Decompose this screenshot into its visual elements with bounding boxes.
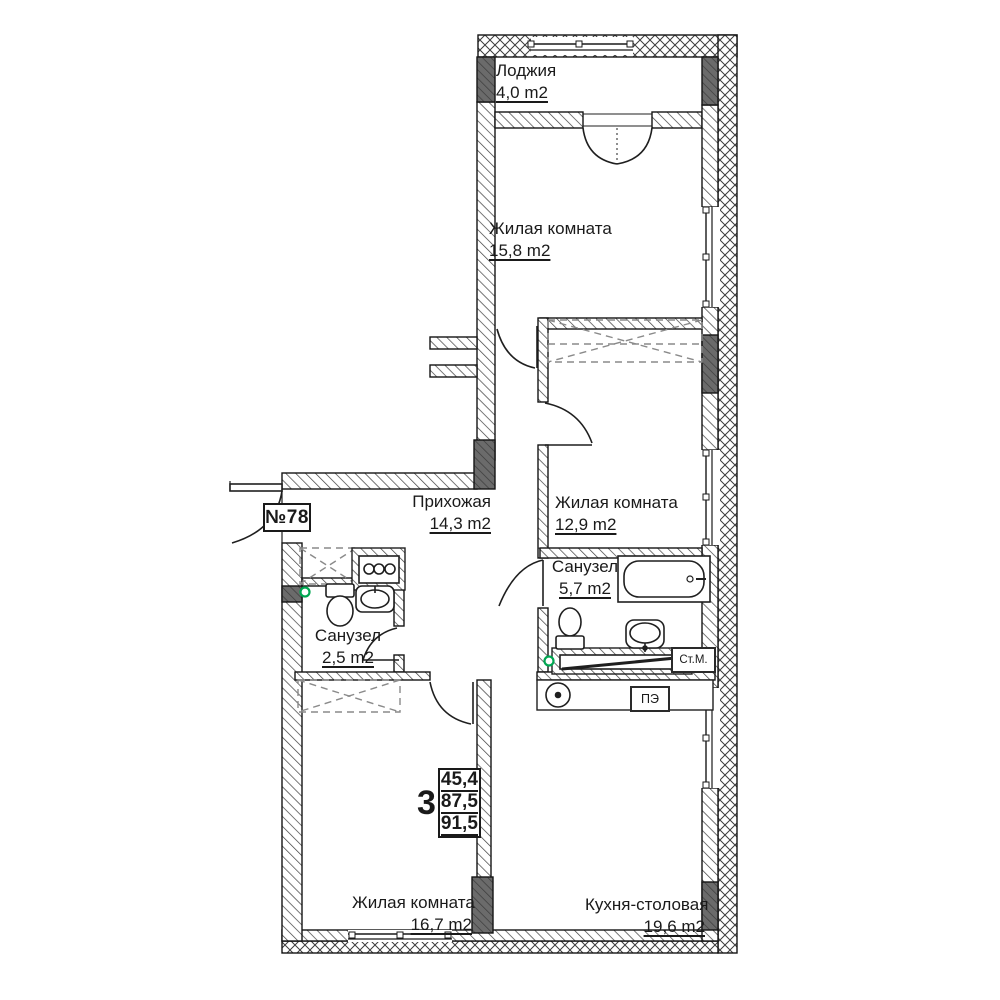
floor-area-row: 87,5 <box>440 792 479 814</box>
room-name: Прихожая <box>391 491 491 513</box>
toilet-icon-large-bath <box>556 608 584 649</box>
total-area-row: 91,5 <box>440 814 479 836</box>
living-bottom-door <box>430 682 473 724</box>
room-area: 4,0 m2 <box>496 82 606 104</box>
room-label-loggia: Лоджия 4,0 m2 <box>496 60 606 105</box>
floor-plan-drawing <box>0 0 1000 1000</box>
room-area: 5,7 m2 <box>535 578 635 600</box>
kitchen-counter <box>537 680 713 710</box>
loggia-french-door <box>583 114 652 164</box>
room-area: 15,8 m2 <box>489 240 629 262</box>
drain-marker-icon <box>301 588 310 597</box>
room-name: Жилая комната <box>352 892 472 914</box>
wardrobe-living-bottom <box>298 680 400 712</box>
electric-stove-box: ПЭ <box>630 686 670 712</box>
room-label-bath-large: Санузел 5,7 m2 <box>535 556 635 601</box>
rooms-count: 3 <box>417 784 436 823</box>
room-name: Санузел <box>535 556 635 578</box>
room-label-living-bottom: Жилая комната 16,7 m2 <box>352 892 472 937</box>
kitchen-sink-icon <box>546 683 570 707</box>
loggia-window <box>528 37 633 55</box>
room-label-bath-small: Санузел 2,5 m2 <box>303 625 393 670</box>
appliance-3-burner <box>352 548 405 590</box>
living-mid-door <box>545 403 592 445</box>
room-area: 12,9 m2 <box>555 514 695 536</box>
washbasin-icon-small-bath <box>356 586 394 612</box>
bath-small-fixtures <box>301 548 406 626</box>
room-label-living-mid: Жилая комната 12,9 m2 <box>555 492 695 537</box>
room-area: 16,7 m2 <box>352 914 472 936</box>
room-name: Жилая комната <box>555 492 695 514</box>
toilet-icon-small-bath <box>326 584 354 626</box>
living-mid-window <box>700 450 720 545</box>
room-area: 14,3 m2 <box>391 513 491 535</box>
washing-machine-box: Ст.М. <box>671 647 716 673</box>
living-top-window <box>700 207 720 307</box>
room-label-kitchen: Кухня-столовая 19,6 m2 <box>585 894 705 939</box>
drain-marker-icon <box>545 657 554 666</box>
area-stamp-table: 45,4 87,5 91,5 <box>438 768 481 838</box>
apartment-number: №78 <box>263 503 311 532</box>
floor-plan: Лоджия 4,0 m2 Жилая комната 15,8 m2 Жила… <box>0 0 1000 1000</box>
room-name: Лоджия <box>496 60 606 82</box>
living-area-row: 45,4 <box>440 770 479 792</box>
area-stamp: 3 45,4 87,5 91,5 <box>417 768 481 838</box>
room-label-hallway: Прихожая 14,3 m2 <box>391 491 491 536</box>
room-label-living-top: Жилая комната 15,8 m2 <box>489 218 629 263</box>
room-name: Кухня-столовая <box>585 894 705 916</box>
room-name: Санузел <box>303 625 393 647</box>
washbasin-icon-large-bath <box>626 620 664 652</box>
room-area: 2,5 m2 <box>303 647 393 669</box>
living-top-door <box>497 326 537 368</box>
room-area: 19,6 m2 <box>585 916 705 938</box>
room-name: Жилая комната <box>489 218 629 240</box>
